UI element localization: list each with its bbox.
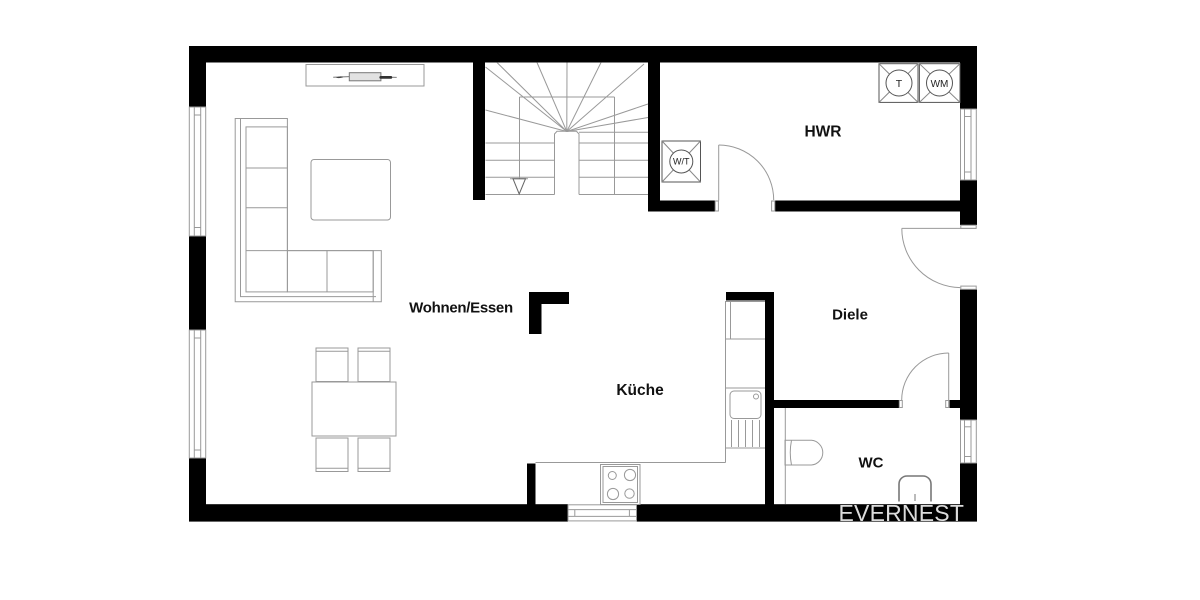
svg-text:HWR: HWR bbox=[804, 124, 841, 141]
svg-text:Diele: Diele bbox=[832, 307, 868, 324]
svg-text:W/T: W/T bbox=[673, 157, 690, 167]
svg-text:Küche: Küche bbox=[616, 382, 664, 399]
svg-text:WC: WC bbox=[859, 455, 884, 472]
svg-text:EVERNEST: EVERNEST bbox=[839, 500, 965, 526]
svg-text:WM: WM bbox=[931, 79, 949, 90]
svg-text:Wohnen/Essen: Wohnen/Essen bbox=[409, 300, 513, 317]
svg-text:T: T bbox=[896, 78, 903, 90]
